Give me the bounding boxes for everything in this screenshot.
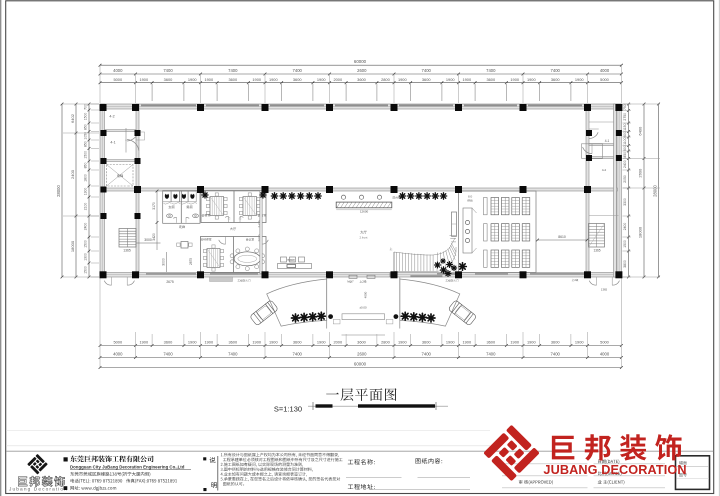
svg-text:1365: 1365	[601, 288, 608, 292]
svg-text:1300: 1300	[84, 188, 88, 196]
svg-text:1900: 1900	[317, 340, 326, 345]
svg-text:1300: 1300	[84, 253, 88, 261]
svg-text:600: 600	[623, 131, 627, 137]
svg-text:28000: 28000	[56, 185, 61, 197]
svg-text:1150: 1150	[623, 123, 627, 130]
svg-text:2600: 2600	[357, 352, 367, 357]
svg-text:1900: 1900	[188, 340, 197, 345]
svg-text:3600: 3600	[357, 340, 366, 345]
svg-text:7400: 7400	[163, 68, 173, 73]
svg-text:2600: 2600	[638, 168, 643, 178]
svg-text:3600: 3600	[422, 340, 431, 345]
svg-text:1100: 1100	[623, 137, 627, 144]
svg-text:3600: 3600	[228, 340, 237, 345]
svg-text:28000: 28000	[653, 185, 658, 197]
svg-text:1900: 1900	[398, 340, 407, 345]
svg-text:1900: 1900	[527, 340, 536, 345]
svg-text:60000: 60000	[354, 59, 367, 64]
svg-text:2600: 2600	[357, 68, 367, 73]
svg-text:2400: 2400	[84, 223, 88, 231]
svg-text:850: 850	[84, 124, 88, 130]
svg-text:1900: 1900	[252, 77, 261, 82]
svg-text:1900: 1900	[446, 77, 455, 82]
svg-text:5000: 5000	[600, 340, 609, 345]
svg-text:7400: 7400	[228, 68, 238, 73]
svg-text:1900: 1900	[252, 340, 261, 345]
svg-text:2875: 2875	[189, 258, 193, 265]
svg-text:1900: 1900	[398, 77, 407, 82]
svg-text:2400: 2400	[70, 169, 75, 179]
svg-text:850: 850	[84, 141, 88, 147]
svg-text:3000: 3000	[162, 258, 166, 266]
svg-text:3000: 3000	[144, 238, 152, 242]
svg-text:JUBANG DECORATION: JUBANG DECORATION	[543, 463, 686, 477]
svg-text:2400: 2400	[623, 160, 627, 168]
svg-text:1900: 1900	[188, 77, 197, 82]
svg-text:7400: 7400	[163, 352, 173, 357]
svg-text:5000: 5000	[600, 77, 609, 82]
svg-text:1900: 1900	[269, 340, 278, 345]
svg-text:2000: 2000	[333, 77, 342, 82]
svg-text:3600: 3600	[551, 340, 560, 345]
svg-text:18000: 18000	[638, 226, 643, 238]
svg-text:850: 850	[623, 152, 627, 158]
svg-text:3600: 3600	[486, 340, 495, 345]
svg-text:4000: 4000	[600, 352, 610, 357]
svg-text:750: 750	[623, 104, 627, 110]
svg-text:1900: 1900	[446, 340, 455, 345]
svg-text:1365: 1365	[123, 249, 131, 253]
svg-text:2400: 2400	[623, 223, 627, 231]
svg-text:600: 600	[623, 145, 627, 151]
svg-text:1900: 1900	[139, 77, 148, 82]
svg-text:2800: 2800	[381, 77, 390, 82]
svg-text:1500: 1500	[84, 240, 88, 248]
svg-text:1900: 1900	[462, 77, 471, 82]
svg-text:4000: 4000	[113, 68, 123, 73]
svg-text:±0.00: ±0.00	[360, 306, 367, 310]
svg-text:1900: 1900	[510, 77, 519, 82]
svg-text:1365: 1365	[593, 249, 600, 253]
svg-text:7400: 7400	[486, 352, 496, 357]
svg-text:3800: 3800	[623, 260, 627, 268]
svg-text:4-1: 4-1	[605, 139, 610, 143]
svg-text:7400: 7400	[422, 68, 432, 73]
svg-text:5000: 5000	[113, 340, 122, 345]
svg-text:850: 850	[84, 163, 88, 169]
svg-text:4000: 4000	[600, 68, 610, 73]
svg-text:60000: 60000	[354, 362, 367, 367]
svg-text:3600: 3600	[551, 77, 560, 82]
svg-text:1500: 1500	[84, 113, 88, 121]
svg-text:1900: 1900	[269, 77, 278, 82]
svg-text:8610: 8610	[558, 235, 566, 239]
svg-text:Dongguan City JuBang Decoratio: Dongguan City JuBang Decoration Engineer…	[70, 464, 185, 469]
svg-text:Jubang Decoration: Jubang Decoration	[9, 487, 68, 493]
svg-text:2750: 2750	[623, 113, 627, 121]
svg-text:2.front: 2.front	[360, 236, 368, 240]
svg-text:3170: 3170	[152, 202, 156, 210]
svg-text:5000: 5000	[113, 77, 122, 82]
svg-text:3600: 3600	[228, 77, 237, 82]
svg-text:4-1: 4-1	[110, 141, 115, 145]
svg-text:4-2: 4-2	[109, 115, 114, 119]
svg-text:1900: 1900	[575, 77, 584, 82]
svg-text:1900: 1900	[575, 340, 584, 345]
svg-text:3600: 3600	[164, 77, 173, 82]
svg-text:3600: 3600	[293, 340, 302, 345]
svg-text:2800: 2800	[381, 340, 390, 345]
svg-text:7400: 7400	[551, 68, 561, 73]
svg-text:1800: 1800	[84, 174, 88, 182]
svg-text:6400: 6400	[638, 126, 643, 136]
svg-text:12600: 12600	[360, 210, 369, 214]
svg-text:6402: 6402	[70, 113, 75, 123]
svg-text:7400: 7400	[228, 352, 238, 357]
svg-text:7400: 7400	[293, 352, 303, 357]
svg-text:2675: 2675	[166, 280, 174, 284]
svg-text:3600: 3600	[486, 77, 495, 82]
svg-text:2000: 2000	[333, 340, 342, 345]
svg-text:1500: 1500	[623, 240, 627, 248]
svg-text:1900: 1900	[204, 340, 213, 345]
svg-text:1900: 1900	[139, 340, 148, 345]
svg-text:2050: 2050	[623, 175, 627, 183]
svg-text:7400: 7400	[293, 68, 303, 73]
svg-text:1900: 1900	[204, 77, 213, 82]
svg-text:4-2: 4-2	[602, 168, 607, 172]
svg-text:7400: 7400	[486, 68, 496, 73]
svg-text:1900: 1900	[462, 340, 471, 345]
svg-text:3600: 3600	[422, 77, 431, 82]
svg-text:700: 700	[84, 104, 88, 110]
svg-text:3600: 3600	[293, 77, 302, 82]
svg-text:S=1:130: S=1:130	[274, 405, 302, 414]
svg-text:2100: 2100	[84, 203, 88, 211]
svg-text:1900: 1900	[510, 340, 519, 345]
svg-text:3600: 3600	[357, 77, 366, 82]
svg-text:3420: 3420	[152, 233, 156, 241]
svg-text:3600: 3600	[164, 340, 173, 345]
svg-text:1500: 1500	[84, 266, 88, 274]
svg-text:1900: 1900	[527, 77, 536, 82]
svg-text:3300: 3300	[623, 198, 627, 206]
svg-text:7400: 7400	[422, 352, 432, 357]
svg-text:7400: 7400	[551, 352, 561, 357]
svg-text:4000: 4000	[364, 291, 368, 298]
svg-text:18000: 18000	[70, 240, 75, 252]
svg-text:1500: 1500	[84, 151, 88, 159]
svg-text:4000: 4000	[113, 352, 123, 357]
svg-text:1900: 1900	[317, 77, 326, 82]
